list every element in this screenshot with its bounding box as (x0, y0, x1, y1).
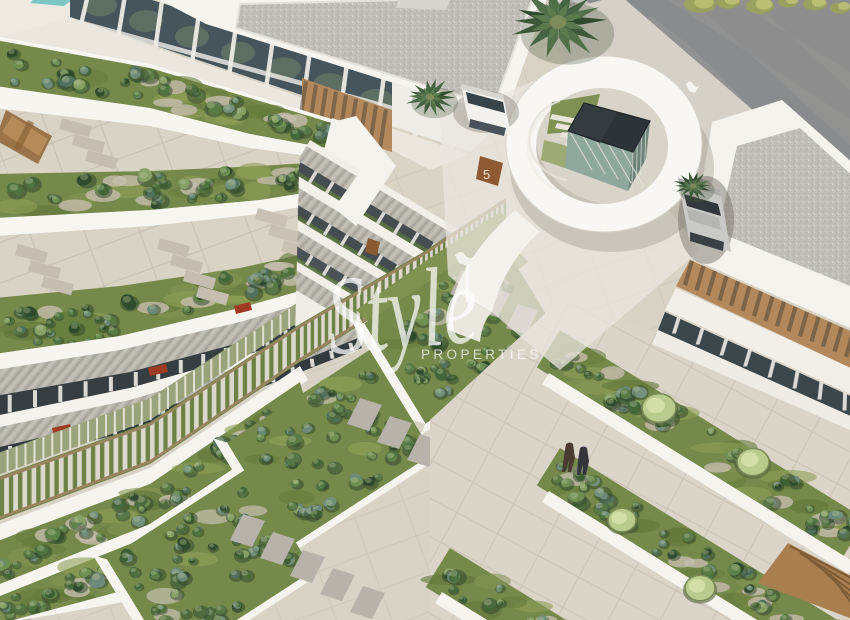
svg-text:PROPERTIES: PROPERTIES (421, 347, 542, 362)
svg-text:5: 5 (483, 167, 490, 182)
